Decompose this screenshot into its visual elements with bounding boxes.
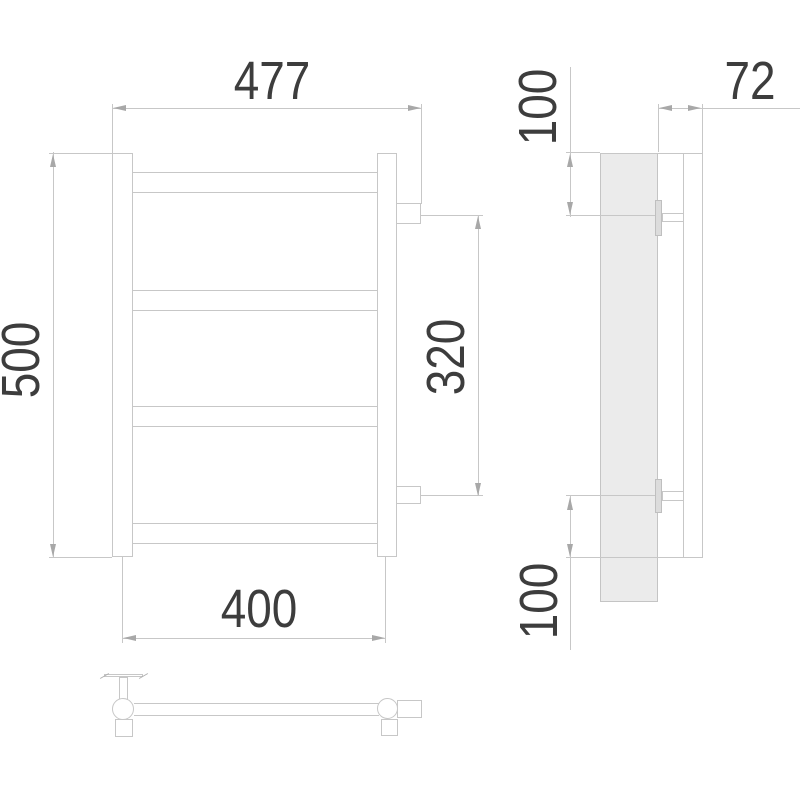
dim-72-label: 72: [691, 56, 800, 106]
dim-72-arrow-left: [659, 105, 672, 111]
dim-500-line: [53, 152, 54, 558]
drawing-canvas: 477 500 320 400: [0, 0, 800, 800]
side-vertical-tube: [600, 153, 658, 602]
dim-100b-ext-top: [566, 495, 662, 496]
rung-4: [132, 523, 378, 544]
dim-100t-arrow-top: [567, 154, 573, 167]
top-square-left: [115, 719, 133, 737]
dim-100b-line: [570, 496, 571, 650]
dim-400-arrow-left: [123, 635, 136, 641]
fitting-bottom-right: [396, 486, 421, 504]
dim-400-ext-left: [122, 557, 123, 643]
dim-320-arrow-bottom: [475, 483, 481, 496]
post-left: [112, 153, 133, 557]
dim-320-line: [478, 215, 479, 496]
dim-477-arrow-right: [408, 105, 421, 111]
rung-3: [132, 406, 378, 427]
dim-100t-ext-top: [566, 152, 600, 153]
top-collector-left: [112, 698, 134, 720]
top-wall-fitting: [397, 700, 422, 718]
dim-100b-arrow-top: [567, 497, 573, 510]
post-right: [377, 153, 397, 557]
dim-500-arrow-bottom: [50, 544, 56, 557]
dim-500-ext-top: [49, 153, 133, 154]
fitting-top-right: [396, 203, 421, 224]
dim-400-ext-right: [385, 557, 386, 643]
dim-400-arrow-right: [372, 635, 385, 641]
dim-400-label: 400: [200, 584, 319, 634]
top-tube: [134, 703, 379, 716]
dim-72-ext-right: [702, 104, 703, 176]
dim-320-label: 320: [421, 298, 471, 417]
dim-100t-ext-bottom: [566, 215, 662, 216]
dim-320-ext-top: [421, 215, 483, 216]
rung-2: [132, 290, 378, 311]
side-wall-bracket: [683, 153, 703, 558]
top-collector-right: [377, 698, 398, 719]
side-flange-bottom: [655, 479, 662, 513]
top-valve-cap: [104, 674, 143, 677]
dim-500-label: 500: [0, 301, 46, 420]
dim-100t-label: 100: [513, 48, 563, 167]
dim-100t-arrow-bottom: [567, 202, 573, 215]
dim-320-arrow-top: [475, 216, 481, 229]
dim-320-ext-bottom: [421, 495, 483, 496]
dim-72-ext-left: [658, 104, 659, 152]
side-pipe-bottom: [662, 491, 684, 501]
side-flange-top: [655, 200, 662, 236]
side-pipe-top: [662, 213, 684, 222]
dim-477-ext-left: [112, 104, 113, 153]
dim-477-label: 477: [213, 56, 332, 106]
dim-100t-line: [570, 67, 571, 217]
dim-500-arrow-top: [50, 154, 56, 167]
rung-1: [132, 172, 378, 193]
dim-100b-label: 100: [514, 542, 564, 661]
dim-100b-arrow-bottom: [567, 544, 573, 557]
dim-477-arrow-left: [113, 105, 126, 111]
top-square-right: [381, 719, 398, 736]
dim-500-ext-bottom: [49, 557, 112, 558]
dim-100b-ext-bottom: [566, 557, 683, 558]
dim-477-ext-right: [421, 104, 422, 204]
